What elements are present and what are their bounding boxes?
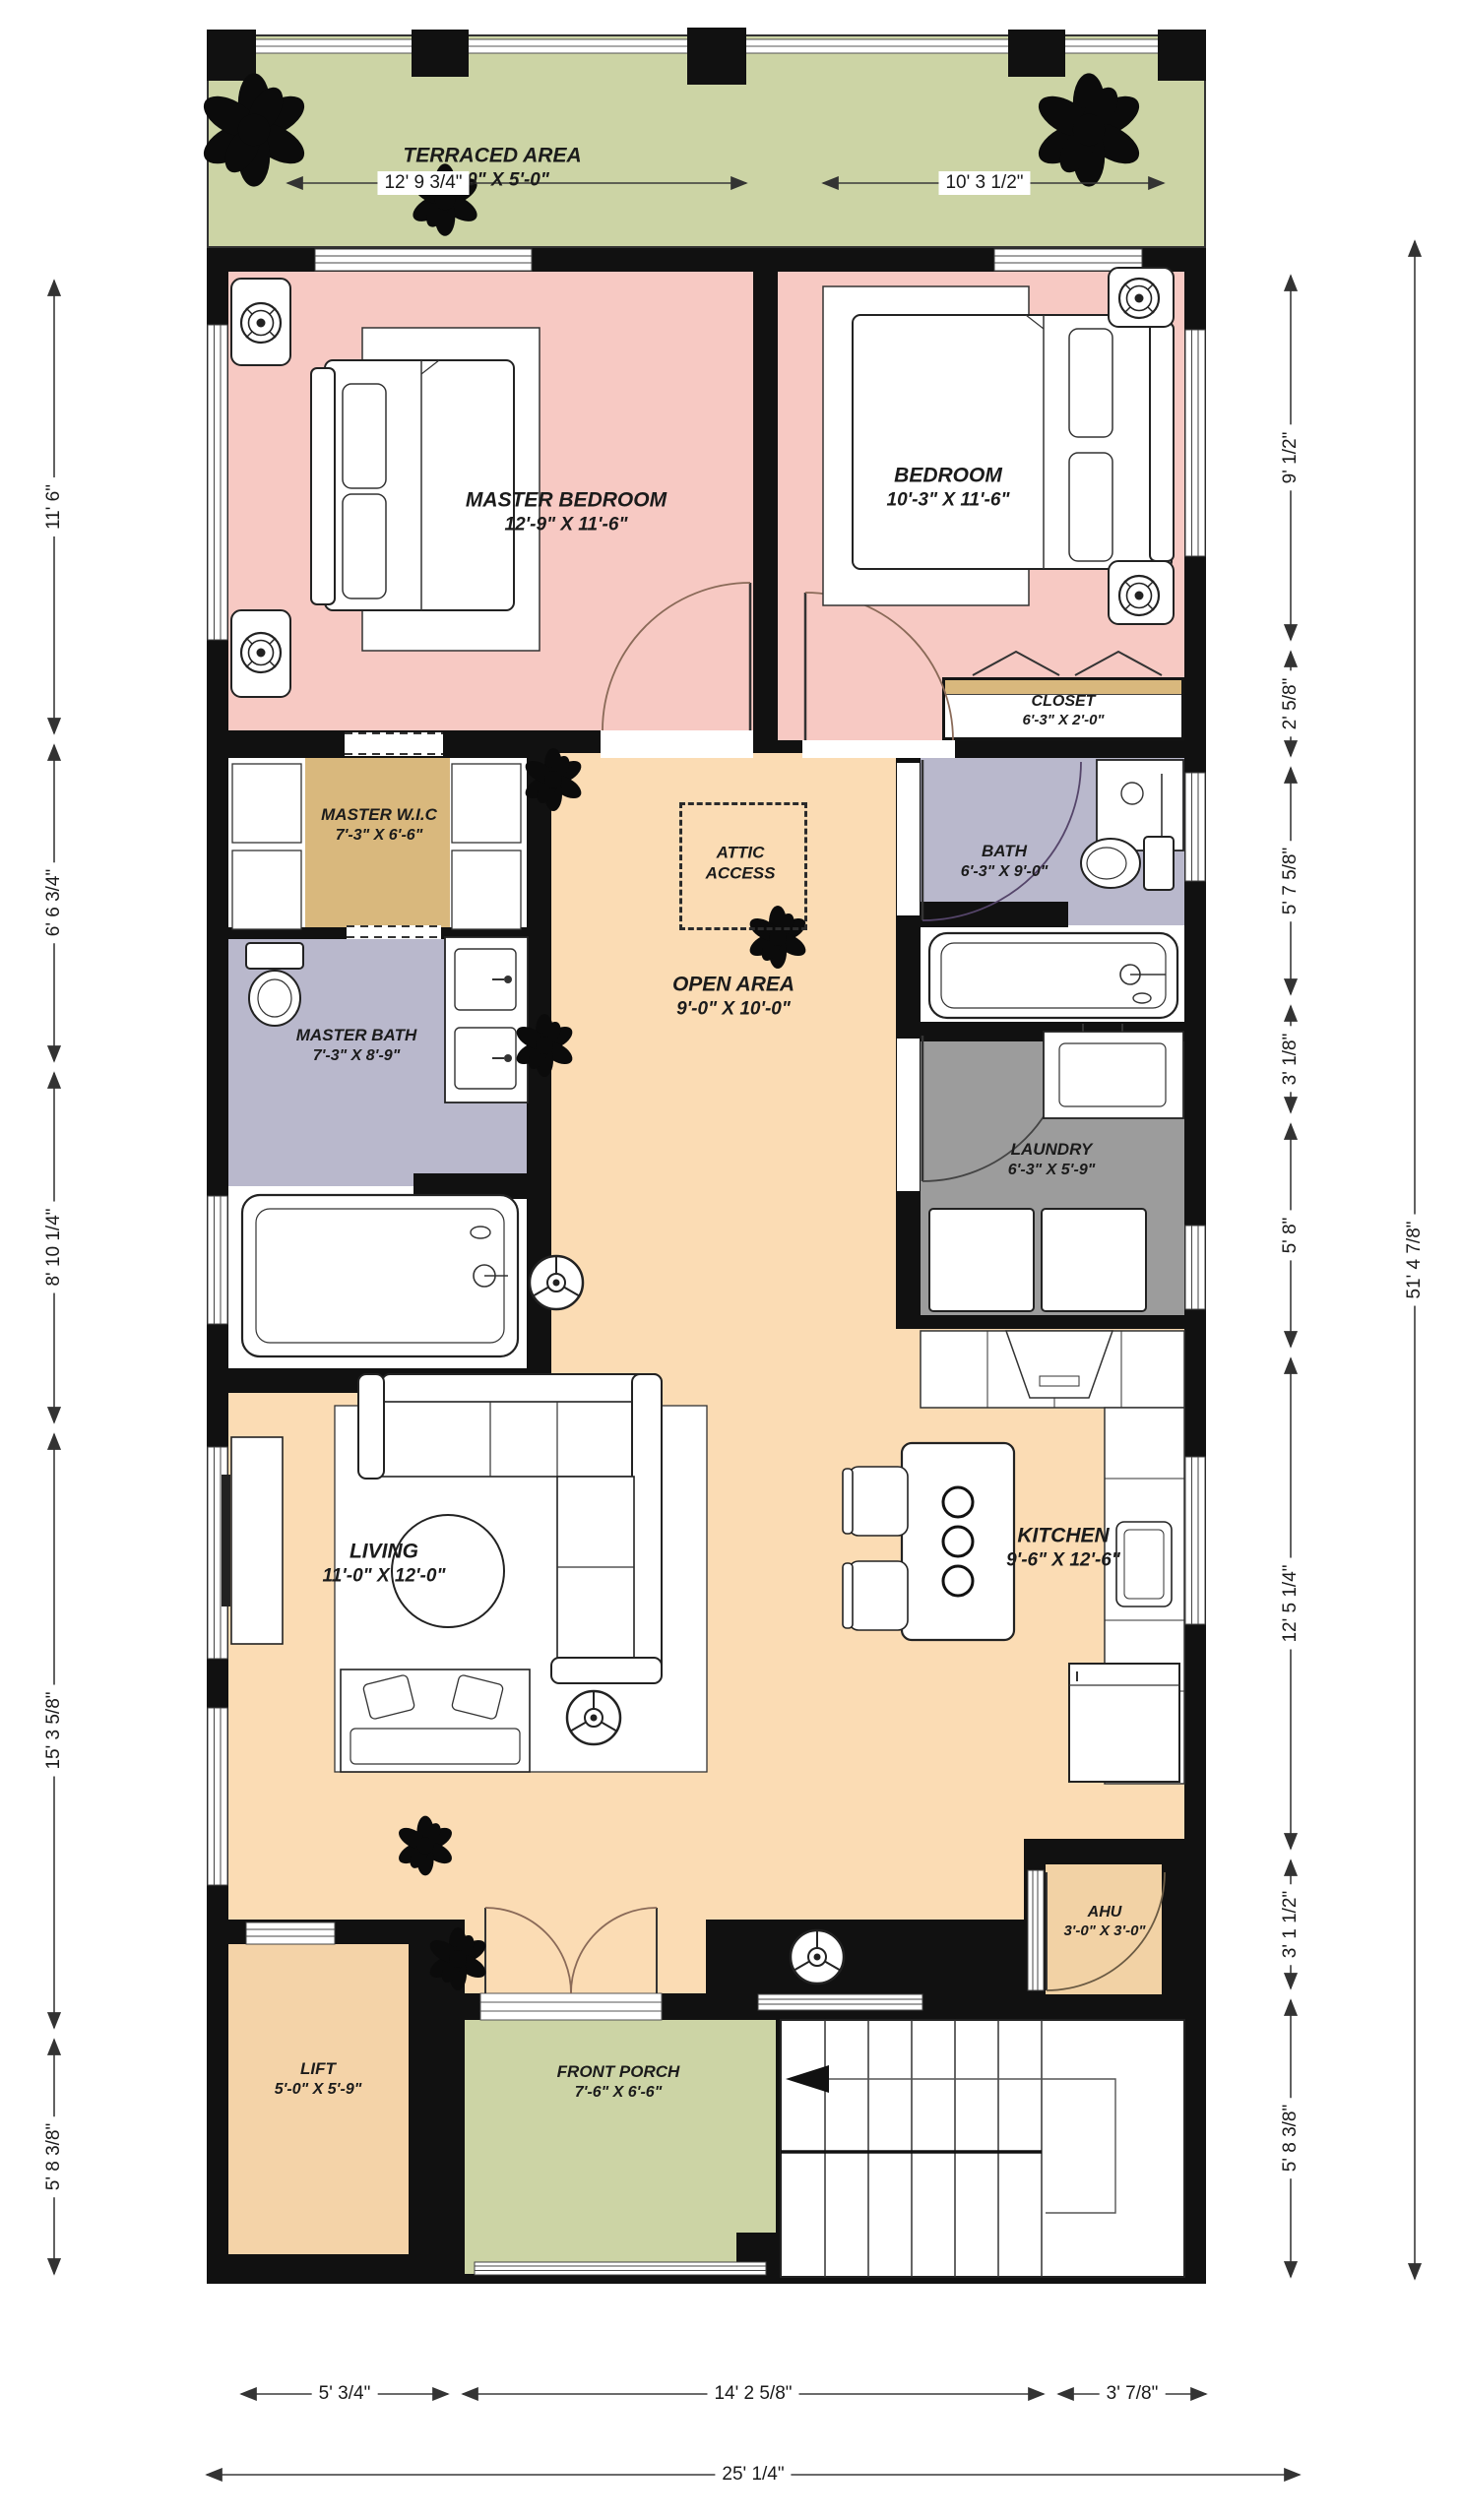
label-living: LIVING11'-0" X 12'-0" xyxy=(323,1540,446,1588)
label-attic-access: ATTIC ACCESS xyxy=(682,843,798,883)
dim-bottom-2: 14' 2 5/8" xyxy=(707,2382,798,2406)
dim-bottom-3: 3' 7/8" xyxy=(1100,2382,1166,2406)
label-open-area: OPEN AREA9'-0" X 10'-0" xyxy=(672,973,795,1021)
label-front-porch: FRONT PORCH7'-6" X 6'-6" xyxy=(557,2062,680,2102)
dim-right-2: 2' 5/8" xyxy=(1279,671,1303,737)
label-lift: LIFT5'-0" X 5'-9" xyxy=(275,2059,362,2099)
label-master-bedroom: MASTER BEDROOM12'-9" X 11'-6" xyxy=(466,488,667,536)
label-bath: BATH6'-3" X 9'-0" xyxy=(961,842,1049,881)
label-bedroom: BEDROOM10'-3" X 11'-6" xyxy=(887,464,1010,512)
label-ahu: AHU3'-0" X 3'-0" xyxy=(1063,1903,1145,1940)
room-terrace xyxy=(207,34,1206,248)
room-front-porch xyxy=(465,2020,776,2274)
label-closet: CLOSET6'-3" X 2'-0" xyxy=(1022,692,1104,729)
label-master-wic: MASTER W.I.C7'-3" X 6'-6" xyxy=(321,805,437,845)
dim-top-2: 10' 3 1/2" xyxy=(938,171,1030,195)
dim-left-3: 8' 10 1/4" xyxy=(42,1201,66,1292)
dim-left-1: 11' 6" xyxy=(42,477,66,536)
dim-right-7: 3' 1 1/2" xyxy=(1279,1884,1303,1965)
room-stairs xyxy=(781,2020,1184,2277)
room-bedroom-extension xyxy=(778,677,942,740)
dim-right-5: 5' 8" xyxy=(1279,1211,1303,1261)
room-master-wic xyxy=(305,758,450,935)
room-living xyxy=(228,1393,896,1920)
dim-left-4: 15' 3 5/8" xyxy=(42,1684,66,1776)
dim-bottom-1: 5' 3/4" xyxy=(312,2382,378,2406)
wardrobe-right xyxy=(450,758,527,935)
dim-right-4: 3' 1/8" xyxy=(1279,1027,1303,1093)
label-master-bath: MASTER BATH7'-3" X 8'-9" xyxy=(296,1026,416,1065)
dim-right-3: 5' 7 5/8" xyxy=(1279,841,1303,921)
dim-bottom-overall: 25' 1/4" xyxy=(715,2463,791,2487)
dim-right-8: 5' 8 3/8" xyxy=(1279,2098,1303,2178)
master-tub-alcove xyxy=(228,1186,527,1368)
wardrobe-left xyxy=(228,758,305,935)
door-vestibule xyxy=(465,1920,706,1993)
dim-left-5: 5' 8 3/8" xyxy=(42,2116,66,2197)
label-kitchen: KITCHEN9'-6" X 12'-6" xyxy=(1006,1524,1120,1572)
room-kitchen xyxy=(896,1329,1184,1920)
dim-right-overall: 51' 4 7/8" xyxy=(1403,1214,1427,1305)
dim-left-2: 6' 6 3/4" xyxy=(42,862,66,943)
dim-right-1: 9' 1/2" xyxy=(1279,425,1303,491)
label-laundry: LAUNDRY6'-3" X 5'-9" xyxy=(1008,1140,1096,1179)
room-lift xyxy=(228,1944,409,2254)
dim-top-1: 12' 9 3/4" xyxy=(377,171,469,195)
bath-tub-alcove xyxy=(921,925,1184,1022)
floor-plan-canvas: TERRACED AREA25'-0" X 5'-0" MASTER BEDRO… xyxy=(0,0,1462,2520)
dim-right-6: 12' 5 1/4" xyxy=(1279,1557,1303,1649)
